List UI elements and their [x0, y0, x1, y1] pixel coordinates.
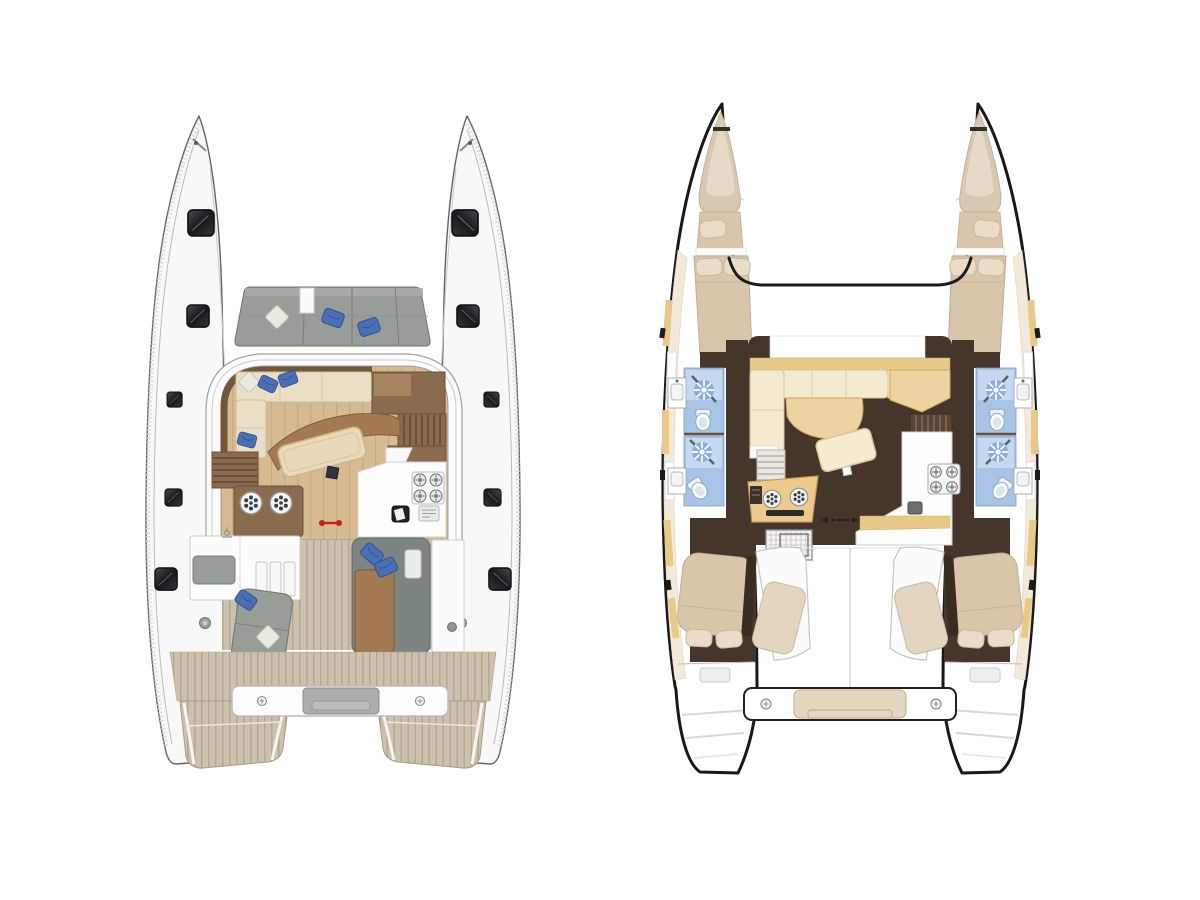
pillow — [686, 629, 713, 647]
wash-basin — [668, 468, 686, 494]
counter — [860, 516, 950, 530]
table-leg — [842, 466, 851, 475]
lounge-gap — [300, 288, 314, 313]
cockpit-bench — [750, 547, 810, 660]
bridgedeck-front-line — [729, 258, 971, 285]
transom-beam — [232, 686, 448, 716]
toilet-icon — [696, 409, 710, 430]
interior-plan — [659, 104, 1040, 773]
transom-step — [794, 690, 906, 718]
screw-icon — [761, 699, 771, 709]
table-leg — [326, 466, 339, 479]
salon — [206, 354, 462, 545]
cockpit-bench-starboard — [890, 547, 950, 660]
cockpit-bench-starboard — [432, 540, 464, 652]
cockpit-interior — [744, 547, 956, 720]
bow-locker — [699, 112, 740, 212]
pillow — [695, 258, 722, 277]
deck-vent — [200, 618, 211, 629]
burner-ring — [240, 492, 262, 514]
port-hull-interior — [659, 104, 757, 773]
salon-interior — [748, 336, 960, 560]
screw-icon — [258, 697, 267, 706]
port-counter — [234, 486, 303, 537]
stairs-starboard — [398, 414, 446, 446]
plans-canvas — [0, 0, 1200, 900]
wash-basin — [668, 378, 686, 408]
helm-dial — [790, 488, 808, 506]
cockpit — [190, 527, 464, 666]
sink — [392, 506, 409, 522]
starboard-cabinet — [372, 372, 445, 414]
stove — [928, 464, 960, 494]
catamaran-layout-figure — [0, 0, 1200, 900]
shower-icon — [692, 442, 712, 462]
bow-cap — [713, 127, 730, 131]
sink — [908, 502, 922, 514]
front-window — [770, 336, 925, 358]
helm-console — [748, 476, 818, 522]
stairs-port — [212, 452, 258, 488]
bow-lounge — [235, 287, 430, 346]
cleat — [660, 470, 665, 480]
burner-ring — [270, 492, 292, 514]
control-panel — [419, 506, 439, 521]
pillow — [715, 629, 742, 648]
hull-corridor — [726, 340, 748, 520]
cockpit-lounge-starboard — [352, 538, 430, 654]
screw-icon — [931, 699, 941, 709]
pillow — [699, 219, 727, 239]
stove — [412, 472, 444, 504]
deck-plan — [146, 116, 520, 768]
galley — [358, 462, 446, 537]
forepeak-berth — [697, 212, 743, 248]
aft-deck — [170, 652, 496, 768]
console-slot — [766, 510, 804, 516]
screw-icon — [416, 697, 425, 706]
helm-dial — [763, 490, 781, 508]
shower-icon — [694, 380, 714, 400]
deck-fitting — [448, 623, 457, 632]
transom-beam — [744, 688, 956, 720]
starboard-hull-interior — [943, 104, 1041, 773]
